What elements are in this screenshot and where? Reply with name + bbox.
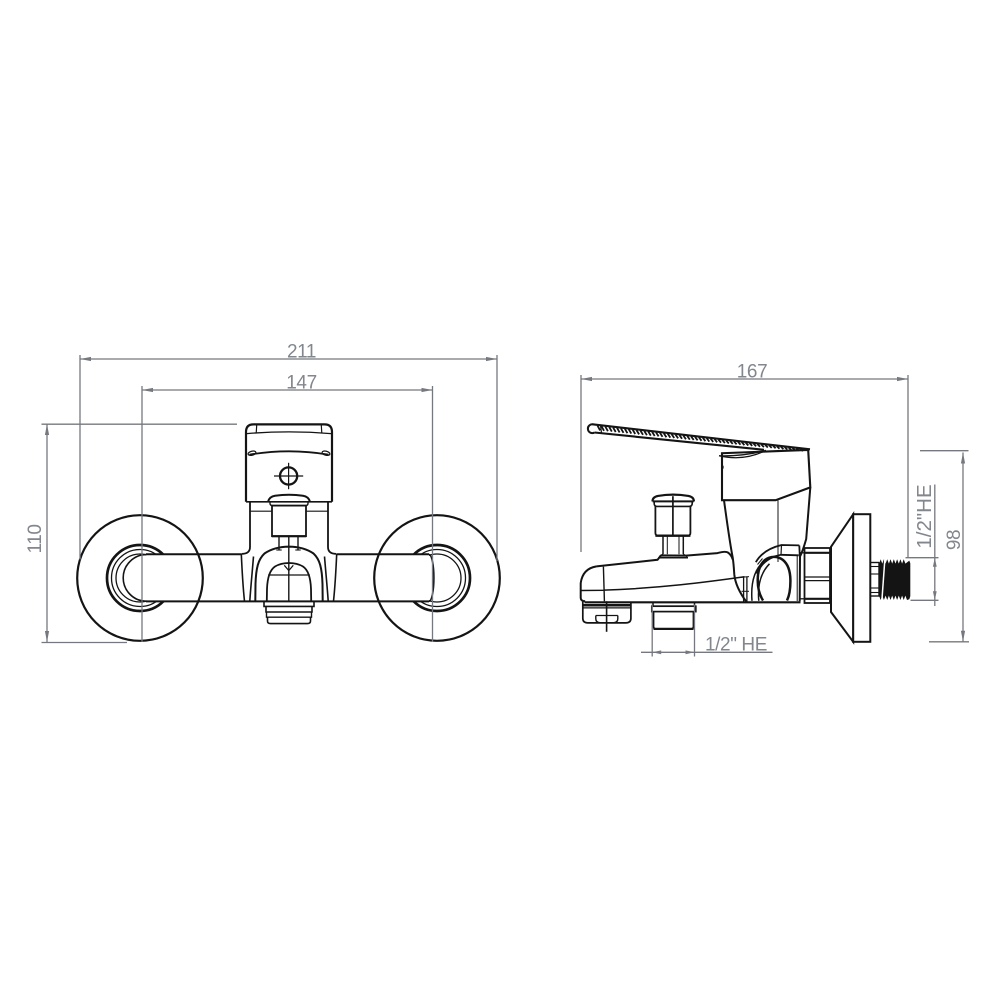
svg-text:1/2" HE: 1/2" HE (705, 634, 767, 655)
svg-text:211: 211 (287, 342, 316, 363)
svg-text:1/2"HE: 1/2"HE (913, 484, 936, 548)
svg-text:98: 98 (944, 530, 965, 550)
svg-text:147: 147 (286, 373, 317, 394)
svg-text:110: 110 (25, 524, 46, 553)
svg-text:167: 167 (737, 362, 768, 383)
